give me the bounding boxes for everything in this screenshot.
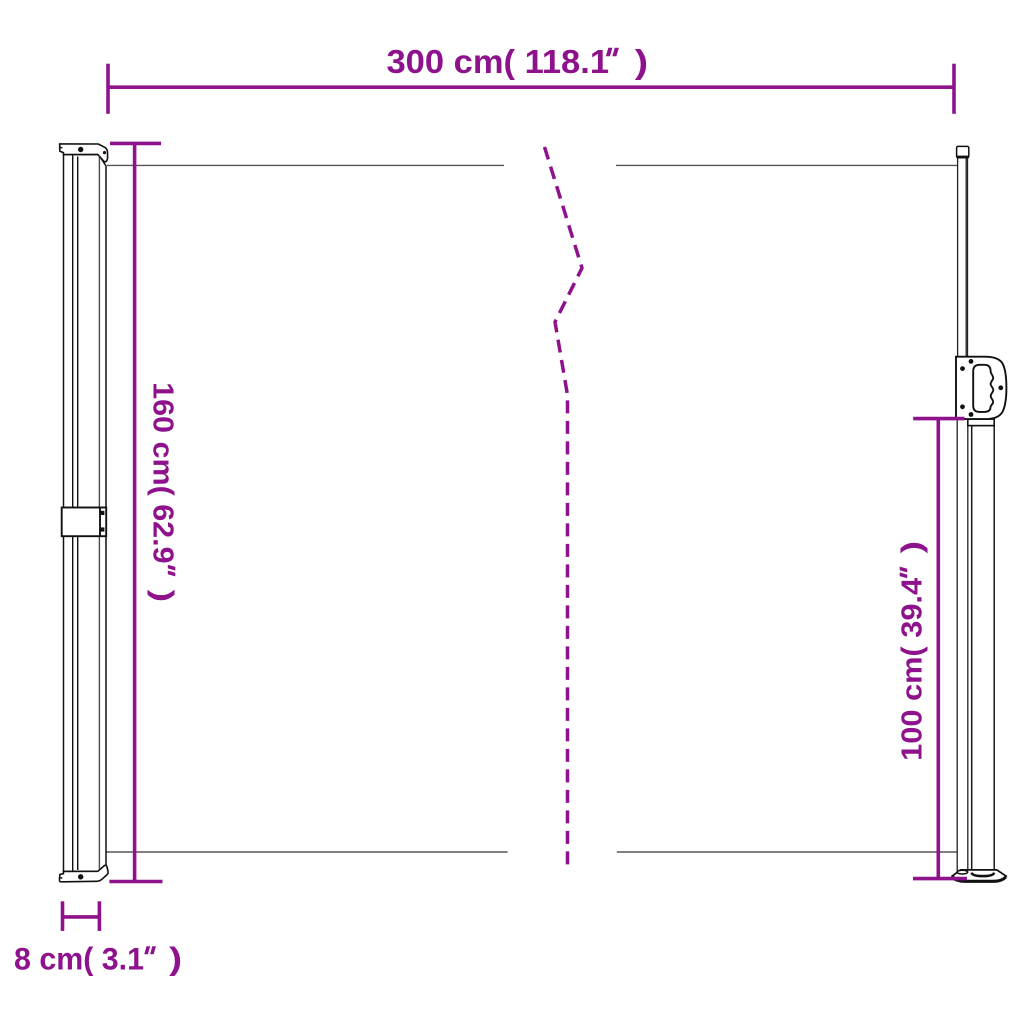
svg-text:): ) bbox=[635, 44, 648, 81]
svg-text:100 cm( 39.4: 100 cm( 39.4 bbox=[897, 578, 929, 761]
svg-text:): ) bbox=[169, 942, 182, 977]
svg-text:): ) bbox=[146, 590, 178, 603]
svg-text:): ) bbox=[897, 541, 929, 554]
svg-text:160 cm( 62.9: 160 cm( 62.9 bbox=[146, 382, 178, 563]
svg-text:8 cm( 3.1: 8 cm( 3.1 bbox=[14, 942, 144, 977]
svg-text:300 cm( 118.1: 300 cm( 118.1 bbox=[387, 44, 610, 81]
